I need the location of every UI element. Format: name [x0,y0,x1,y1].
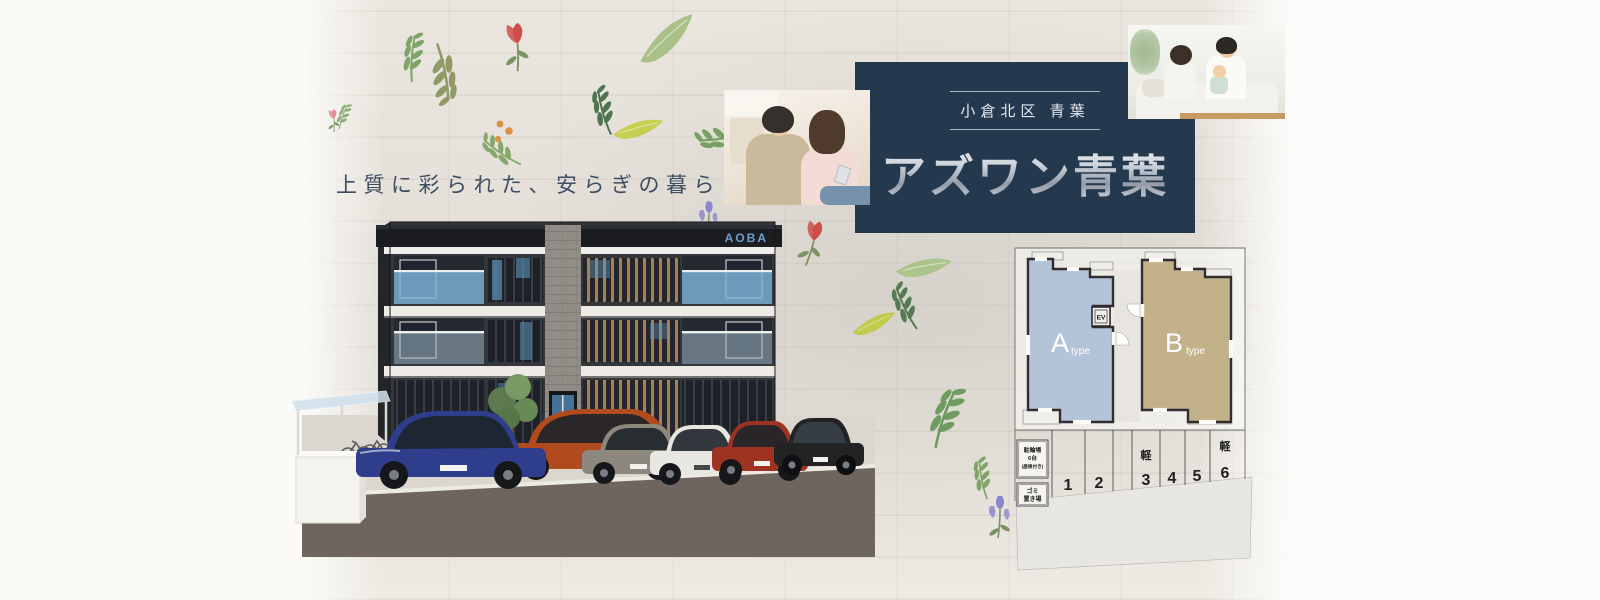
floor-plan: EV A type B type 駐輪場 6台 (屋根付き) [1005,240,1265,575]
mother-silhouette [1164,61,1196,99]
pink-flower-icon [328,109,340,132]
man-hair [762,106,794,133]
parking-space-5: 5 [1193,468,1202,485]
parking-space-1: 1 [1064,477,1073,494]
divider-line [950,91,1100,92]
kei-label-3: 軽 [1141,448,1153,462]
unit-a-suffix: type [1071,346,1090,357]
baby-silhouette [1210,76,1228,94]
fern-icon [580,83,631,138]
parking-space-6: 6 [1221,465,1230,482]
parking-space-4: 4 [1168,470,1177,487]
father-hair [1216,37,1237,54]
corridor [1114,270,1140,422]
storage-box [296,451,366,523]
unit-b-suffix: type [1186,346,1205,357]
big-leaf-icon [896,238,952,294]
leaf-sprig-icon [963,455,1004,502]
tagline: 上質に彩られた、安らぎの暮らし。 [336,169,776,199]
unit-b [1142,260,1231,422]
table [1180,113,1285,119]
leaf-sprig-icon [394,31,435,83]
small-sprig-icon [336,104,352,129]
building-sign: AOBA [725,231,768,245]
bicycle-parking-note: (屋根付き) [1022,463,1044,470]
floor-2 [394,318,772,364]
leaf-branch-icon [928,388,967,448]
family-photo [1128,25,1285,119]
berry-icon [495,121,513,142]
yellow-leaf-icon [613,102,663,154]
promo-banner: 上質に彩られた、安らぎの暮らし。 AOBA [0,0,1600,600]
plant [1130,29,1160,75]
red-flower-icon [505,23,530,71]
couple-photo [724,90,870,205]
kei-label-6: 軽 [1220,439,1232,453]
woman-hair [809,110,845,154]
elevator: EV [1092,307,1110,326]
big-leaf-icon [640,8,692,68]
garbage-label-2: 置き場 [1023,495,1041,503]
unit-a-letter: A [1051,328,1069,358]
road [1016,477,1252,570]
jeans [820,186,870,205]
bicycle-parking-count: 6台 [1028,454,1037,462]
divider-line [950,129,1100,130]
fern-icon [880,280,934,334]
property-title: アズワン青葉 [881,140,1169,205]
olive-frond-icon [411,40,472,109]
location-label: 小倉北区 青葉 [960,100,1089,121]
elevator-label: EV [1097,315,1106,322]
mother-hair [1170,45,1192,65]
garbage-label-1: ゴミ [1026,487,1038,495]
baby-head [1213,65,1226,78]
unit-a [1028,259,1113,422]
garbage-box: ゴミ 置き場 [1017,483,1048,506]
bicycle-parking-box: 駐輪場 6台 (屋根付き) [1017,440,1048,478]
unit-b-letter: B [1165,328,1183,358]
parking-space-3: 3 [1142,472,1151,489]
parking-space-2: 2 [1095,475,1104,492]
floor-3 [394,256,772,304]
bicycle-parking-label: 駐輪場 [1024,446,1042,454]
leaf-sprig-icon [477,131,527,170]
building-render: AOBA [290,205,880,560]
